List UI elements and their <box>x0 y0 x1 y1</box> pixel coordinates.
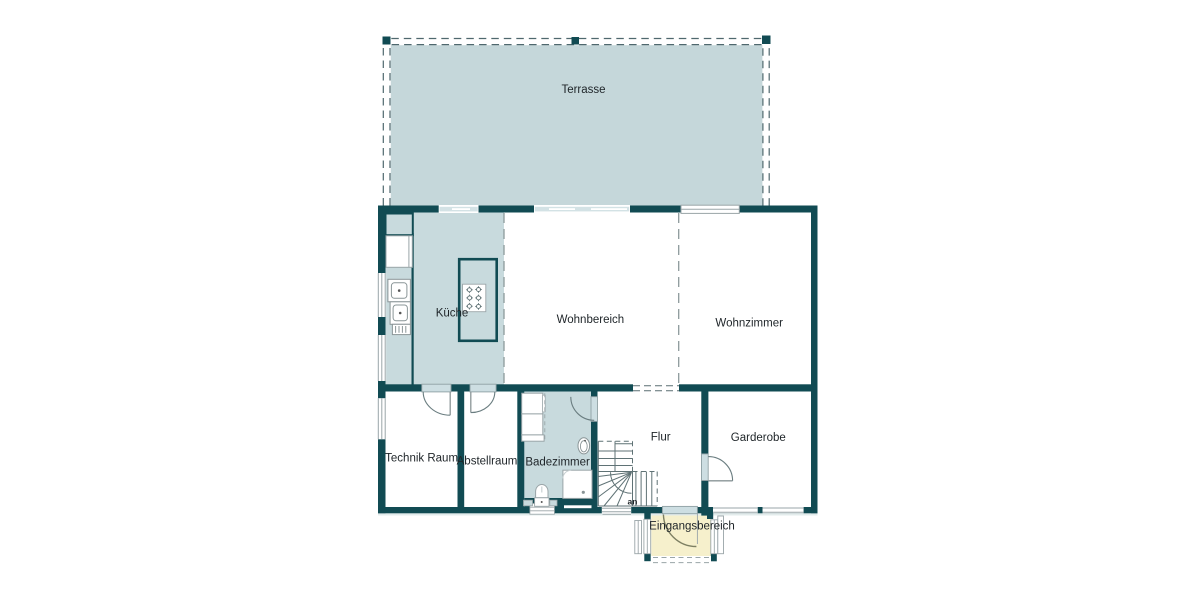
svg-text:Flur: Flur <box>651 431 671 443</box>
svg-text:Abstellraum: Abstellraum <box>457 455 518 467</box>
svg-text:Terrasse: Terrasse <box>561 84 605 96</box>
svg-text:Technik Raum: Technik Raum <box>385 452 458 464</box>
svg-text:Eingangsbereich: Eingangsbereich <box>649 520 735 532</box>
svg-text:Garderobe: Garderobe <box>731 432 786 444</box>
svg-text:an: an <box>628 497 638 507</box>
svg-text:Wohnzimmer: Wohnzimmer <box>715 317 783 329</box>
svg-text:Wohnbereich: Wohnbereich <box>557 314 625 326</box>
svg-text:Badezimmer: Badezimmer <box>525 456 590 468</box>
svg-text:Küche: Küche <box>436 308 469 320</box>
